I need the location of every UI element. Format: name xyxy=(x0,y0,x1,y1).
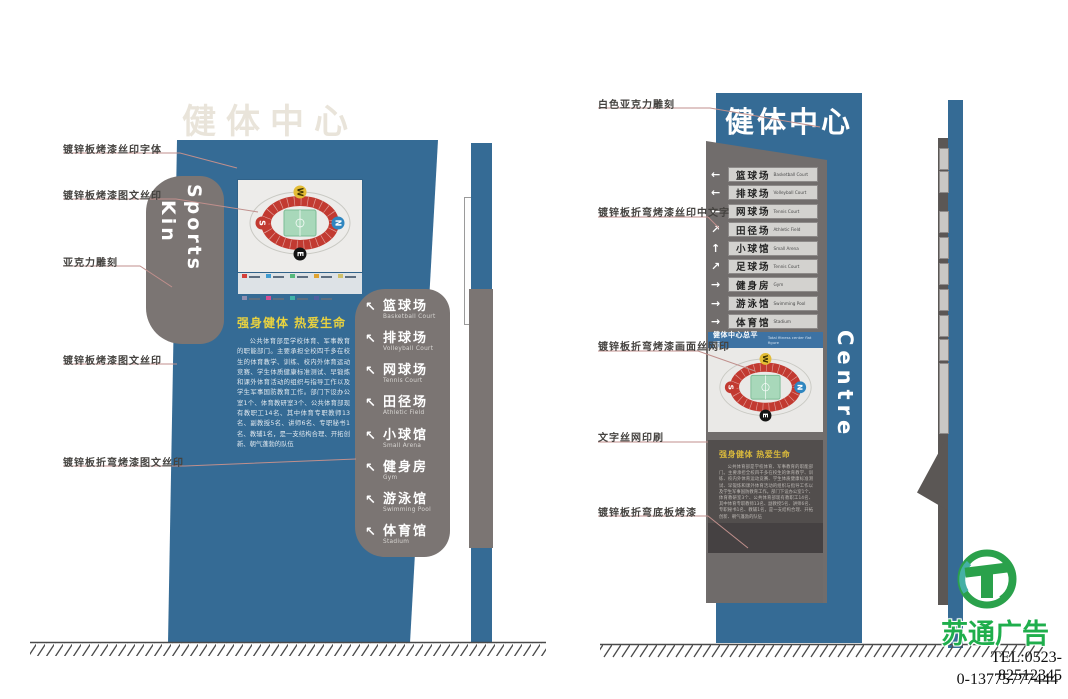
venue-name-cn: 篮球场 xyxy=(736,168,771,182)
venue-name-cn: 足球场 xyxy=(736,259,771,273)
venue-name-en: Stadium xyxy=(383,539,428,545)
callout-label: 文字丝网印刷 xyxy=(598,429,664,444)
right-slogan: 强身健体 热爱生命 xyxy=(719,449,813,460)
callout-label: 镀锌板烤漆图文丝印 xyxy=(63,352,162,367)
svg-text:E: E xyxy=(761,413,770,418)
right-base-band xyxy=(708,523,823,553)
right-lower-panel xyxy=(708,553,823,603)
directory-item: ↖游泳馆Swimming Pool xyxy=(365,493,450,525)
directory-bar: 游泳馆Swimming Pool xyxy=(728,296,818,311)
legend-item xyxy=(290,263,308,282)
right-text-section: 强身健体 热爱生命 公共体育部是学校体育、军事教育的职能部门。主要承担全校四千多… xyxy=(708,440,823,523)
venue-name-cn: 体育馆 xyxy=(383,525,428,539)
venue-name-en: Tennis Court xyxy=(774,209,800,214)
legend-item xyxy=(266,285,284,304)
right-pylon-side-label: Centre xyxy=(828,165,862,605)
arrow-up-left-icon: ↖ xyxy=(365,461,383,477)
venue-name-cn: 小球馆 xyxy=(736,241,771,255)
company-logo xyxy=(950,546,1028,616)
arrow-left-icon: ← xyxy=(711,186,728,199)
directory-bar: 体育馆Stadium xyxy=(728,314,818,329)
side-slat xyxy=(939,148,949,170)
left-about-text: 公共体育部是学校体育、军事教育的职能部门。主要承担全校四千多在校生的体育教学、训… xyxy=(237,337,350,450)
legend-item xyxy=(242,285,260,304)
stadium-plan-graphic: W E S N xyxy=(708,348,823,432)
venue-name-cn: 体育馆 xyxy=(736,315,771,329)
directory-item: ↗田径场Athletic Field xyxy=(706,222,827,237)
venue-name-en: Athletic Field xyxy=(383,410,428,416)
venue-name-en: Tennis Court xyxy=(383,378,428,384)
directory-item: ↖健身房Gym xyxy=(365,461,450,493)
directory-item: ↖网球场Tennis Court xyxy=(365,364,450,396)
venue-name-en: Tennis Court xyxy=(774,264,800,269)
directory-bar: 健身房Gym xyxy=(728,277,818,292)
venue-name-cn: 游泳馆 xyxy=(736,296,771,310)
directory-bar: 足球场Tennis Court xyxy=(728,259,818,274)
mobile-number: 0-13775777444 xyxy=(928,671,1058,689)
arrow-up-left-icon: ↖ xyxy=(365,525,383,541)
callout-label: 镀锌板折弯底板烤漆 xyxy=(598,504,697,519)
venue-name-en: Athletic Field xyxy=(774,227,801,232)
legend-row xyxy=(242,263,358,282)
venue-name-cn: 健身房 xyxy=(383,461,428,475)
venue-name-cn: 健身房 xyxy=(736,278,771,292)
svg-text:W: W xyxy=(761,355,770,363)
svg-text:N: N xyxy=(796,384,805,390)
venue-name-cn: 游泳馆 xyxy=(383,493,431,507)
venue-name-cn: 田径场 xyxy=(383,396,428,410)
signage-design-sheet: 健体中心 Sports Kin W E S N xyxy=(0,0,1068,699)
compass-south-letter: S xyxy=(258,220,267,226)
venue-name-en: Swimming Pool xyxy=(383,507,431,513)
arrow-right-icon: → xyxy=(711,297,728,310)
map-title-en: Total fitness center flat figure xyxy=(768,335,823,345)
side-slat xyxy=(939,211,949,233)
venue-name-cn: 田径场 xyxy=(736,223,771,237)
directory-item: ↖篮球场Basketball Court xyxy=(365,300,450,332)
legend-item xyxy=(314,285,332,304)
directory-item: ↖田径场Athletic Field xyxy=(365,396,450,428)
directory-item: →健身房Gym xyxy=(706,277,827,292)
venue-name-en: Swimming Pool xyxy=(774,301,806,306)
arrow-right-icon: → xyxy=(711,315,728,328)
callout-label: 镀锌板烤漆丝印字体 xyxy=(63,141,162,156)
venue-name-en: Small Arena xyxy=(383,443,428,449)
callout-label: 白色亚克力雕刻 xyxy=(598,96,675,111)
right-pylon-title: 健体中心 xyxy=(716,99,862,141)
callout-label: 镀锌板折弯烤漆丝印中文字 xyxy=(598,204,730,219)
left-side-view-panel xyxy=(469,289,493,548)
right-about-text: 公共体育部是学校体育、军事教育的职能部门。主要承担全校四千多在校生的体育教学、训… xyxy=(719,465,813,521)
callout-label: 镀锌板烤漆图文丝印 xyxy=(63,187,162,202)
legend-item xyxy=(338,263,356,282)
ground-line xyxy=(30,643,1043,659)
callout-label: 镀锌板折弯烤漆画面丝网印 xyxy=(598,338,730,353)
venue-name-en: Stadium xyxy=(774,319,791,324)
directory-item: →体育馆Stadium xyxy=(706,314,827,329)
venue-name-en: Small Arena xyxy=(774,246,799,251)
arrow-up-right-icon: ↗ xyxy=(711,223,728,236)
side-slat xyxy=(939,237,949,259)
directory-bar: 田径场Athletic Field xyxy=(728,222,818,237)
arrow-up-left-icon: ↖ xyxy=(365,332,383,348)
side-slat xyxy=(939,171,949,193)
svg-text:S: S xyxy=(726,385,735,390)
compass-east-letter: E xyxy=(296,251,305,256)
venue-name-en: Gym xyxy=(774,282,784,287)
directory-item: ↖排球场Volleyball Court xyxy=(365,332,450,364)
venue-name-cn: 小球馆 xyxy=(383,429,428,443)
legend-row xyxy=(242,285,358,304)
venue-name-cn: 排球场 xyxy=(383,332,433,346)
arrow-up-left-icon: ↖ xyxy=(365,300,383,316)
directory-bar: 篮球场Basketball Court xyxy=(728,167,818,182)
company-name: 苏通广告 xyxy=(934,612,1056,651)
directory-item: →游泳馆Swimming Pool xyxy=(706,296,827,311)
tab-label-kin: Kin xyxy=(157,200,179,244)
directory-item: ↖小球馆Small Arena xyxy=(365,429,450,461)
annotation-overlay xyxy=(0,0,1068,699)
venue-name-en: Basketball Court xyxy=(774,172,809,177)
directory-item: ←篮球场Basketball Court xyxy=(706,167,827,182)
venue-name-cn: 网球场 xyxy=(736,204,771,218)
right-directory-panel: ←篮球场Basketball Court ←排球场Volleyball Cour… xyxy=(706,138,827,329)
venue-name-cn: 排球场 xyxy=(736,186,771,200)
directory-bar: 小球馆Small Arena xyxy=(728,241,818,256)
compass-north-letter: N xyxy=(334,220,343,227)
arrow-up-left-icon: ↖ xyxy=(365,364,383,380)
venue-name-en: Gym xyxy=(383,475,428,481)
venue-name-cn: 网球场 xyxy=(383,364,428,378)
venue-name-en: Volleyball Court xyxy=(774,190,807,195)
venue-name-en: Basketball Court xyxy=(383,314,436,320)
compass-west-letter: W xyxy=(296,188,305,197)
side-slat xyxy=(939,363,949,434)
directory-item: ←排球场Volleyball Court xyxy=(706,185,827,200)
legend-item xyxy=(314,263,332,282)
callout-label: 镀锌板折弯烤漆图文丝印 xyxy=(63,454,184,469)
directory-bar: 排球场Volleyball Court xyxy=(728,185,818,200)
arrow-up-right-icon: ↗ xyxy=(711,260,728,273)
side-slat xyxy=(939,289,949,311)
left-slogan: 强身健体 热爱生命 xyxy=(237,314,346,331)
directory-bar: 网球场Tennis Court xyxy=(728,204,818,219)
venue-name-en: Volleyball Court xyxy=(383,346,433,352)
side-slat xyxy=(939,339,949,361)
arrow-left-icon: ← xyxy=(711,168,728,181)
left-stadium-map: W E S N xyxy=(238,180,362,272)
side-slat xyxy=(939,315,949,337)
venue-name-cn: 篮球场 xyxy=(383,300,436,314)
legend-item xyxy=(266,263,284,282)
directory-item: ↑小球馆Small Arena xyxy=(706,241,827,256)
arrow-up-icon: ↑ xyxy=(711,242,728,255)
callout-label: 亚克力雕刻 xyxy=(63,254,118,269)
map-card-body: W E S N xyxy=(708,348,823,432)
arrow-up-left-icon: ↖ xyxy=(365,396,383,412)
centre-label: Centre xyxy=(833,330,857,439)
watermark-text: 健体中心 xyxy=(182,94,358,143)
legend-item xyxy=(290,285,308,304)
side-slat xyxy=(939,263,949,285)
arrow-right-icon: → xyxy=(711,278,728,291)
left-directory-panel: ↖篮球场Basketball Court ↖排球场Volleyball Cour… xyxy=(355,289,450,557)
right-side-view-wedge xyxy=(917,437,947,510)
map-legend xyxy=(238,273,362,294)
legend-item xyxy=(242,263,260,282)
stadium-plan-graphic: W E S N xyxy=(238,180,362,272)
arrow-up-left-icon: ↖ xyxy=(365,493,383,509)
tab-label-sports: Sports xyxy=(183,184,205,272)
directory-item: ↖体育馆Stadium xyxy=(365,525,450,557)
directory-item: ↗足球场Tennis Court xyxy=(706,259,827,274)
arrow-up-left-icon: ↖ xyxy=(365,429,383,445)
